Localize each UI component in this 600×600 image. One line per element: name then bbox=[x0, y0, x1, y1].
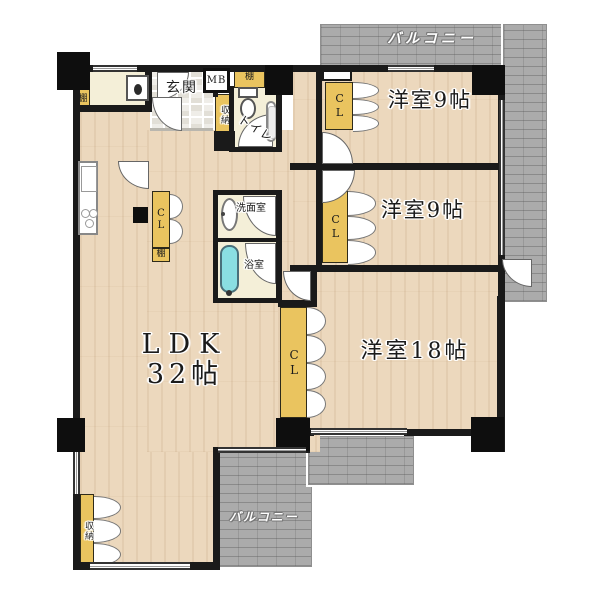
wall bbox=[276, 86, 282, 152]
closet-bedroom3-doors bbox=[307, 307, 326, 418]
bedroom2-label: 洋室9帖 bbox=[348, 198, 498, 224]
storage-ldk-label: 収納 bbox=[82, 521, 92, 541]
bedroom3-label: 洋室18帖 bbox=[330, 338, 500, 366]
closet-ldk-label: CL bbox=[156, 208, 167, 232]
wall bbox=[290, 265, 505, 272]
ldk-label: LDK 32帖 bbox=[115, 328, 255, 392]
window bbox=[499, 100, 505, 255]
mb-box: MB bbox=[203, 68, 230, 93]
sink-faucet bbox=[221, 212, 225, 216]
bifold-door-leaf bbox=[307, 307, 326, 335]
closet-bedroom3-label: CL bbox=[287, 348, 300, 378]
wall bbox=[73, 65, 80, 570]
closet-bedroom3: CL bbox=[280, 307, 307, 418]
storage-hall-label: 収納 bbox=[218, 105, 228, 125]
ldk-name: LDK bbox=[142, 330, 229, 360]
storage-ldk: 収納 bbox=[80, 494, 94, 568]
bifold-door-leaf bbox=[170, 219, 183, 244]
wall bbox=[278, 300, 310, 307]
closet-bedroom2-label: CL bbox=[329, 213, 341, 241]
wall bbox=[214, 131, 235, 151]
bifold-door-leaf bbox=[307, 335, 326, 363]
bathroom-label: 浴室 bbox=[232, 259, 276, 272]
pillar bbox=[57, 52, 90, 90]
wall bbox=[76, 105, 152, 112]
bifold-door-leaf bbox=[348, 240, 376, 265]
balcony-bottom-label: バルコニー bbox=[218, 508, 310, 528]
mb-label: MB bbox=[207, 75, 227, 86]
kitchen-sink bbox=[81, 166, 97, 192]
balcony-bottom-right bbox=[308, 436, 414, 485]
storage-ldk-doors bbox=[94, 496, 121, 566]
wall bbox=[229, 147, 282, 152]
window bbox=[218, 447, 306, 453]
closet-bedroom1-label: CL bbox=[333, 92, 345, 120]
window bbox=[93, 65, 137, 72]
wall bbox=[213, 190, 218, 302]
pillar bbox=[471, 417, 504, 452]
pillar bbox=[265, 65, 293, 95]
shelf-ldk-label: 棚 bbox=[156, 250, 165, 260]
bifold-door-leaf bbox=[94, 519, 121, 542]
closet-ldk-doors bbox=[170, 194, 183, 244]
bifold-door-leaf bbox=[170, 194, 183, 219]
closet-bedroom1: CL bbox=[325, 82, 353, 130]
window bbox=[311, 428, 407, 435]
bifold-door-leaf bbox=[307, 390, 326, 418]
bifold-door-leaf bbox=[353, 115, 379, 132]
wall bbox=[213, 190, 282, 195]
pillar bbox=[57, 418, 85, 452]
wall bbox=[404, 429, 474, 436]
stove-burner bbox=[89, 209, 98, 218]
shelf-ldk: 棚 bbox=[152, 248, 170, 262]
closet-ldk: CL bbox=[152, 191, 170, 248]
wall bbox=[213, 298, 282, 303]
washer-drum bbox=[134, 84, 142, 95]
wall bbox=[216, 238, 278, 242]
toilet-tank bbox=[238, 87, 258, 98]
stove-burner bbox=[85, 219, 94, 228]
balcony-top-label: バルコニー bbox=[320, 30, 544, 50]
window bbox=[388, 65, 434, 72]
bifold-door-leaf bbox=[94, 496, 121, 519]
window bbox=[73, 452, 80, 494]
ldk-size: 32帖 bbox=[147, 360, 223, 390]
wall bbox=[290, 163, 505, 170]
wall bbox=[276, 190, 282, 302]
shelf-hall-label: 棚 bbox=[245, 73, 254, 83]
bifold-door-leaf bbox=[307, 363, 326, 391]
wall bbox=[310, 272, 317, 307]
washroom-label: 洗面室 bbox=[226, 202, 276, 215]
bathtub-faucet bbox=[226, 290, 232, 296]
window bbox=[90, 562, 190, 570]
duct-column bbox=[133, 207, 148, 223]
floor-plan: CL CL CL CL 棚 棚 棚 収納 収納 bbox=[0, 0, 600, 600]
bedroom1-label: 洋室9帖 bbox=[355, 88, 505, 114]
